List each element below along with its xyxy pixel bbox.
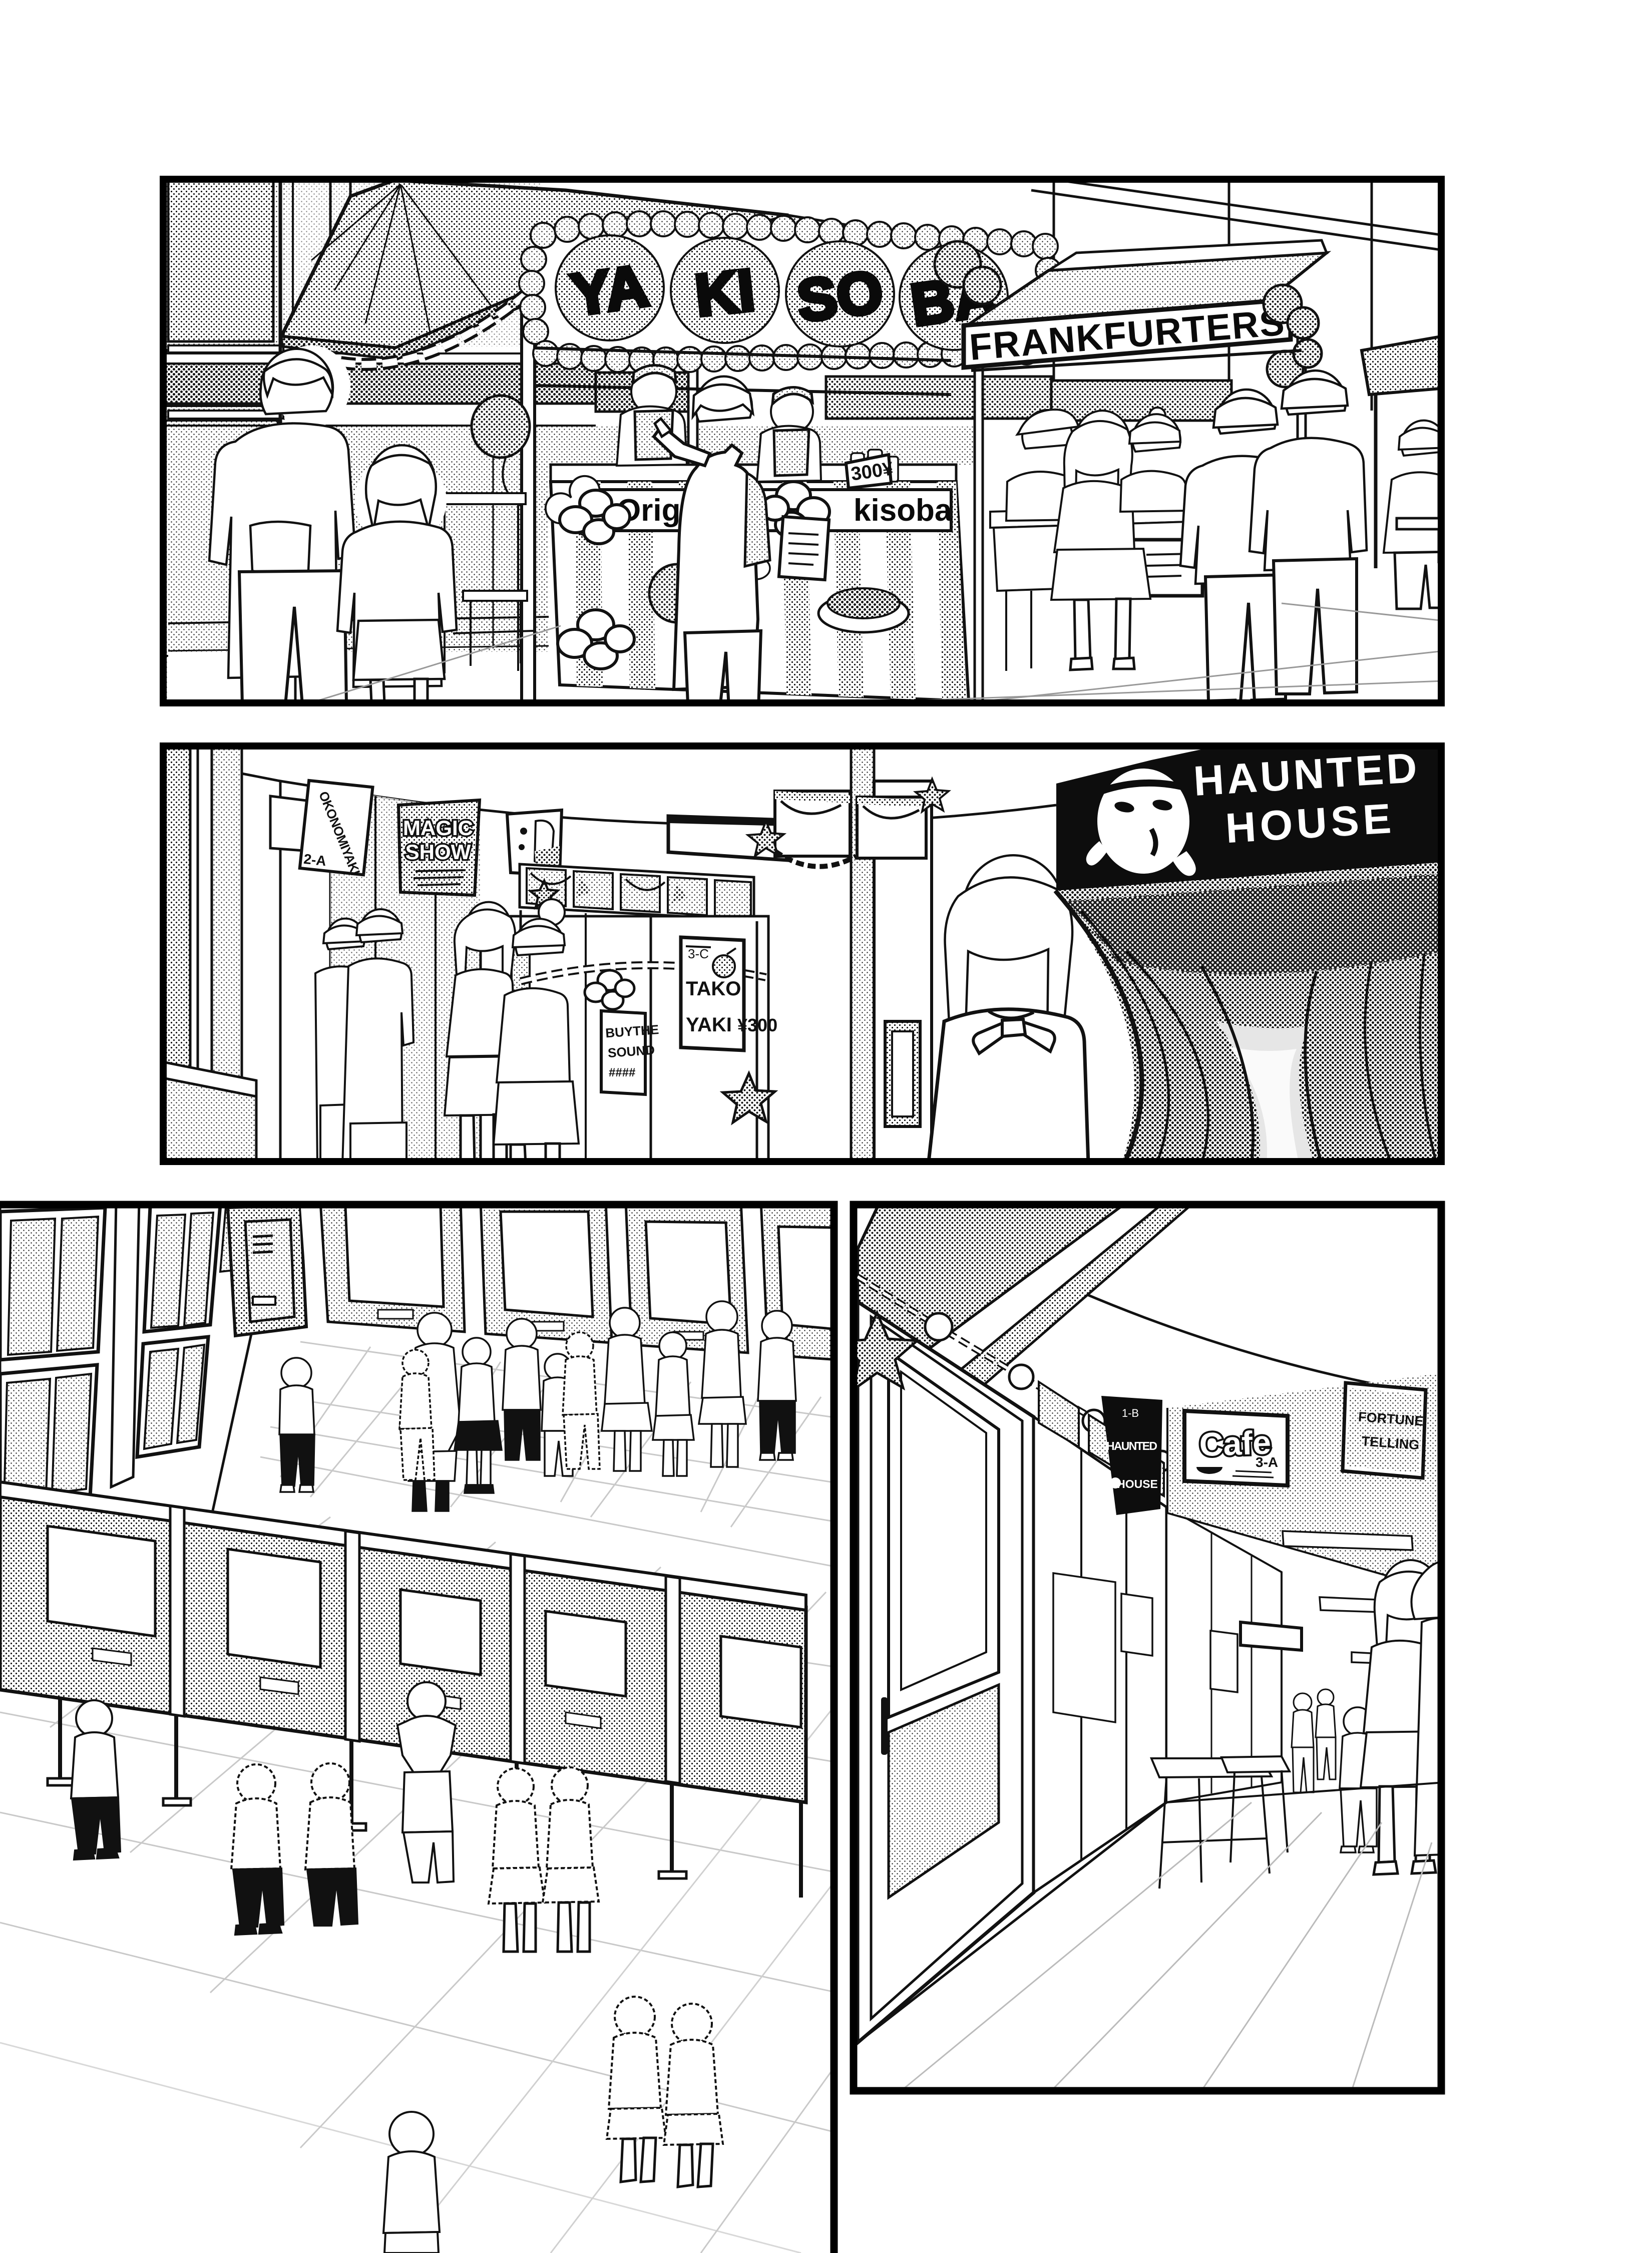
svg-text:1-B: 1-B xyxy=(1122,1407,1139,1419)
svg-text:KI: KI xyxy=(692,257,757,329)
svg-text:SHOW: SHOW xyxy=(405,840,471,864)
svg-text:kisoba: kisoba xyxy=(854,493,952,528)
svg-text:YA: YA xyxy=(567,252,652,328)
svg-text:3-A: 3-A xyxy=(1256,1454,1278,1470)
svg-text:####: #### xyxy=(609,1066,635,1079)
svg-text:3-C: 3-C xyxy=(688,946,709,961)
svg-text:SO: SO xyxy=(793,258,886,334)
svg-text:2-A: 2-A xyxy=(303,851,327,869)
svg-text:TAKO: TAKO xyxy=(686,978,741,1000)
svg-text:HAUNTED: HAUNTED xyxy=(1106,1439,1157,1452)
svg-text:MAGIC: MAGIC xyxy=(403,816,473,840)
svg-text:HOUSE: HOUSE xyxy=(1117,1477,1158,1490)
svg-text:YAKI ¥300: YAKI ¥300 xyxy=(686,1014,777,1036)
